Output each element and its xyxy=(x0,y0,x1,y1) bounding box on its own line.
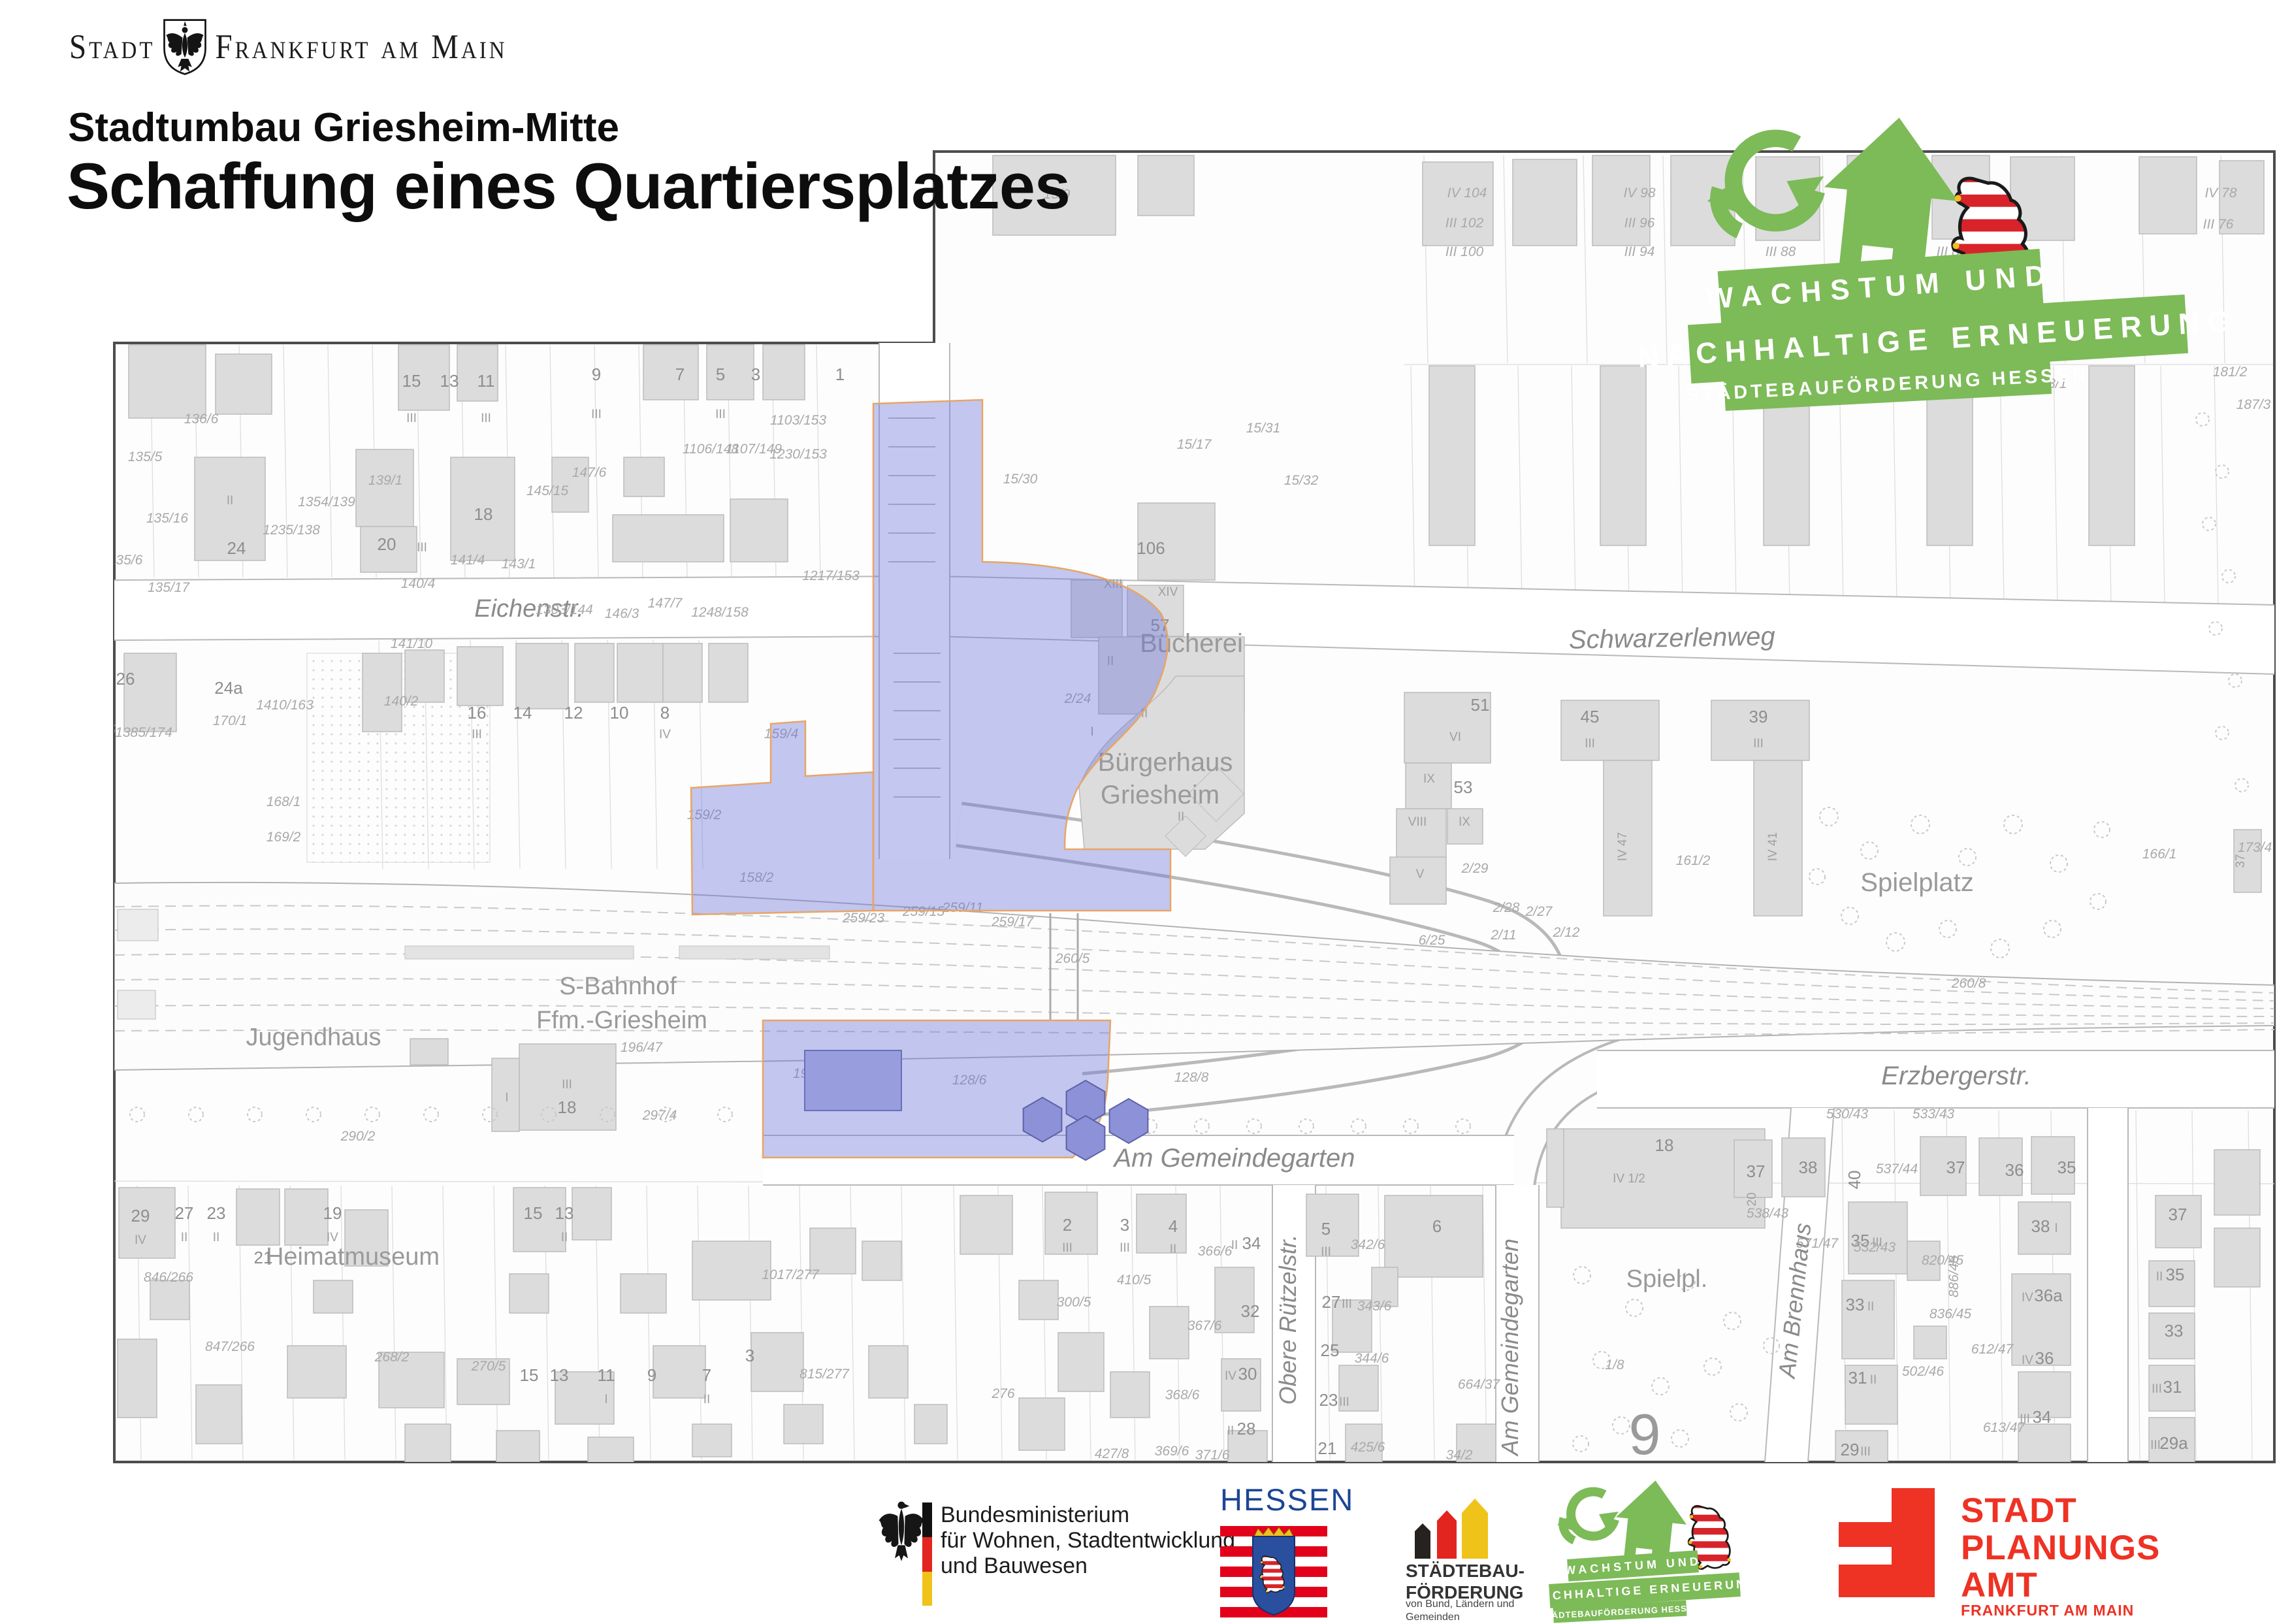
map-label: III xyxy=(1062,1241,1073,1255)
map-label: 29 xyxy=(1841,1440,1860,1459)
map-label: Erzbergerstr. xyxy=(1881,1062,2031,1090)
page-subtitle: Stadtumbau Griesheim-Mitte xyxy=(68,105,619,151)
building xyxy=(751,1333,803,1391)
map-label: 106 xyxy=(1137,538,1165,558)
map-label: 344/6 xyxy=(1355,1351,1389,1366)
bund-line2: für Wohnen, Stadtentwicklung xyxy=(941,1528,1235,1553)
map-shape xyxy=(2088,1108,2128,1462)
stb-sub2: Gemeinden xyxy=(1406,1611,1514,1624)
map-label: 2/11 xyxy=(1490,928,1516,943)
map-label: 147/6 xyxy=(572,465,607,480)
platform xyxy=(679,946,830,959)
map-label: 2 xyxy=(1063,1215,1072,1235)
map-label: Spielpl. xyxy=(1626,1265,1708,1293)
map-label: III xyxy=(417,541,427,555)
building xyxy=(2089,366,2135,545)
map-label: 36a xyxy=(2034,1286,2063,1305)
map-label: 35 xyxy=(2058,1158,2076,1177)
map-label: 530/43 xyxy=(1826,1107,1869,1122)
map-label: 425/6 xyxy=(1351,1440,1385,1455)
map-label: 32 xyxy=(1241,1301,1260,1321)
building xyxy=(285,1189,328,1245)
map-label: 33 xyxy=(2165,1321,2184,1340)
building xyxy=(1600,366,1646,545)
map-label: Heimatmuseum xyxy=(266,1243,440,1271)
map-label: 259/23 xyxy=(842,911,885,926)
map-label: III 76 xyxy=(2203,217,2234,232)
map-label: 37 xyxy=(1747,1161,1766,1181)
map-label: 260/5 xyxy=(1055,951,1090,966)
map-label: 23 xyxy=(1319,1390,1338,1410)
building xyxy=(914,1405,947,1444)
map-label: III xyxy=(591,408,602,421)
map-label: 2/28 xyxy=(1493,900,1520,915)
building xyxy=(1019,1398,1065,1450)
map-label: 23 xyxy=(207,1203,226,1223)
map-label: Ffm.-Griesheim xyxy=(536,1007,707,1034)
map-label: 815/277 xyxy=(799,1367,850,1382)
bund-ministry-label: Bundesministerium für Wohnen, Stadtentwi… xyxy=(941,1502,1235,1579)
building xyxy=(1138,155,1194,216)
map-label: 1248/158 xyxy=(691,605,749,620)
map-label: 15 xyxy=(402,371,421,391)
map-label: XIV xyxy=(1158,585,1178,599)
map-label: II xyxy=(703,1393,711,1406)
building xyxy=(1406,763,1451,809)
map-label: 18 xyxy=(558,1097,577,1117)
bund-stripe-black xyxy=(922,1502,932,1537)
map-label: 3 xyxy=(745,1346,754,1365)
map-label: III 96 xyxy=(1624,216,1655,231)
map-label: 135/17 xyxy=(148,580,191,595)
map-label: 19 xyxy=(323,1203,342,1223)
building xyxy=(1019,1280,1058,1320)
map-label: 537/44 xyxy=(1876,1161,1918,1177)
map-label: 25 xyxy=(1321,1340,1340,1360)
map-label: 1303/144 xyxy=(536,602,593,617)
map-label: Jugendhaus xyxy=(246,1024,381,1051)
staedtebau-houses-icon xyxy=(1406,1493,1497,1559)
map-label: III xyxy=(1753,737,1764,751)
map-label: 169/2 xyxy=(266,830,301,845)
stadtplanungsamt-sublabel: FRANKFURT AM MAIN xyxy=(1961,1602,2134,1619)
building xyxy=(730,499,788,562)
map-label: 161/2 xyxy=(1676,853,1711,868)
map-label: 30 xyxy=(1238,1364,1257,1384)
map-label: III xyxy=(562,1078,572,1092)
map-label: 533/43 xyxy=(1913,1107,1955,1122)
map-label: 166/1 xyxy=(2142,847,2177,862)
building xyxy=(129,345,206,418)
map-label: 37 xyxy=(2169,1205,2187,1224)
map-label: 1017/277 xyxy=(762,1267,820,1282)
map-label: 26 xyxy=(116,669,135,689)
building xyxy=(1513,159,1577,246)
map-label: 139/1 xyxy=(368,473,403,488)
bund-stripe-gold xyxy=(922,1572,932,1606)
map-label: 147/7 xyxy=(648,596,683,611)
building xyxy=(509,1274,549,1313)
map-label: III xyxy=(472,728,482,741)
frankfurt-eagle-crest-icon xyxy=(161,17,208,77)
map-label: 24a xyxy=(214,678,243,698)
hessen-wordmark: HESSEN xyxy=(1220,1482,1327,1518)
map-label: IV 1/2 xyxy=(1613,1172,1645,1186)
map-label: I xyxy=(505,1091,508,1105)
map-label: 15/30 xyxy=(1003,472,1038,487)
city-logo: Stadt Frankfurt am Main xyxy=(69,17,508,77)
building xyxy=(763,345,805,400)
map-label: II xyxy=(181,1231,188,1244)
building xyxy=(1592,155,1650,246)
building xyxy=(1547,1129,1564,1207)
map-label: 18 xyxy=(474,504,493,524)
map-label: 260/8 xyxy=(1951,976,1986,991)
building xyxy=(2018,1424,2071,1462)
map-label: IV 47 xyxy=(1616,832,1630,861)
map-label: III xyxy=(2152,1382,2162,1396)
map-label: 5 xyxy=(716,365,725,384)
building xyxy=(1914,1326,1946,1359)
map-label: III xyxy=(406,412,417,425)
map-label: III xyxy=(1860,1445,1871,1459)
building xyxy=(410,1039,448,1065)
map-label: II xyxy=(227,494,234,508)
building xyxy=(663,643,702,702)
map-label: 173/4 xyxy=(2238,840,2272,855)
building xyxy=(2214,1228,2260,1287)
map-label: II xyxy=(1867,1300,1875,1314)
map-label: V xyxy=(1416,868,1425,881)
map-label: 146/3 xyxy=(605,606,639,621)
map-label: 40 xyxy=(1845,1171,1864,1190)
map-label: 846/266 xyxy=(144,1270,193,1285)
map-label: 35 xyxy=(2166,1265,2185,1284)
map-label: 16 xyxy=(468,703,487,723)
map-label: 145/15 xyxy=(526,483,569,498)
map-label: 12 xyxy=(564,703,583,723)
map-label: 15 xyxy=(524,1203,543,1223)
map-label: 820/45 xyxy=(1922,1253,1964,1268)
building xyxy=(1150,1307,1189,1359)
map-label: 37 xyxy=(2234,854,2248,868)
building xyxy=(496,1431,540,1462)
map-label: II xyxy=(2156,1270,2163,1284)
map-label: 3 xyxy=(1120,1215,1129,1235)
building xyxy=(363,653,402,732)
staedtebau-sublabel: von Bund, Ländern und Gemeinden xyxy=(1406,1598,1514,1624)
map-label: 21 xyxy=(1318,1438,1337,1458)
building xyxy=(405,1424,451,1462)
map-label: III 94 xyxy=(1624,244,1655,259)
building xyxy=(613,515,724,562)
building xyxy=(356,449,413,527)
map-label: II xyxy=(1870,1373,1877,1387)
map-label: 1217/153 xyxy=(802,568,860,583)
spa-line3: AMT xyxy=(1961,1567,2160,1604)
map-label: 410/5 xyxy=(1117,1273,1152,1288)
map-label: III 102 xyxy=(1445,216,1484,231)
map-label: II xyxy=(1231,1239,1238,1252)
building xyxy=(1110,1372,1150,1418)
spa-line2: PLANUNGS xyxy=(1961,1529,2160,1567)
map-label: 2/27 xyxy=(1525,904,1553,919)
building xyxy=(617,643,663,702)
map-label: 502/46 xyxy=(1902,1364,1945,1379)
map-label: 37 xyxy=(1946,1158,1965,1177)
map-label: 2/12 xyxy=(1553,925,1580,940)
map-label: 20 xyxy=(378,534,396,554)
map-label: 1230/153 xyxy=(769,447,827,462)
building xyxy=(196,1385,242,1444)
map-label: 847/266 xyxy=(205,1339,255,1354)
map-label: 836/45 xyxy=(1929,1307,1972,1322)
map-label: IV xyxy=(2022,1354,2033,1367)
map-shape xyxy=(118,990,155,1019)
map-label: III xyxy=(2020,1412,2030,1426)
map-label: 196/47 xyxy=(621,1040,664,1055)
map-label: 297/4 xyxy=(642,1108,677,1123)
map-label: 29a xyxy=(2159,1433,2188,1453)
map-label: 51 xyxy=(1471,695,1490,715)
map-label: 141/4 xyxy=(451,553,485,568)
building xyxy=(692,1241,771,1300)
map-label: 168/1 xyxy=(266,794,301,809)
building xyxy=(709,643,748,702)
map-label: 143/1 xyxy=(502,557,536,572)
map-label: 34/2 xyxy=(1446,1448,1473,1463)
map-label: 128/8 xyxy=(1174,1070,1209,1085)
map-label: 38 xyxy=(2031,1216,2050,1236)
map-label: II xyxy=(1170,1242,1177,1256)
map-label: 135/16 xyxy=(146,511,189,526)
map-label: 290/2 xyxy=(340,1129,376,1144)
map-label: 39 xyxy=(1749,707,1768,726)
map-label: 300/5 xyxy=(1057,1295,1091,1310)
map-label: 367/6 xyxy=(1187,1318,1222,1333)
map-label: Am Gemeindegarten xyxy=(1112,1144,1355,1173)
map-label: 20 xyxy=(1745,1192,1759,1206)
map-label: III xyxy=(1339,1395,1349,1409)
map-label: 259/17 xyxy=(991,915,1035,930)
platform xyxy=(405,946,634,959)
map-label: 9 xyxy=(592,365,601,384)
map-label: 1384/175 xyxy=(58,723,116,738)
map-label: 368/6 xyxy=(1165,1388,1200,1403)
building xyxy=(692,1424,732,1457)
building xyxy=(457,647,503,706)
building xyxy=(1561,700,1659,760)
map-label: 187/3 xyxy=(2236,397,2271,412)
building xyxy=(2214,1150,2260,1215)
building xyxy=(862,1241,901,1280)
map-label: IV xyxy=(659,728,671,741)
building xyxy=(1137,1194,1186,1253)
stb-line1: STÄDTEBAU- xyxy=(1406,1560,1525,1582)
map-label: 18 xyxy=(1655,1135,1674,1155)
map-label: III xyxy=(1342,1297,1352,1311)
map-label: II xyxy=(213,1231,220,1244)
map-label: III xyxy=(2150,1438,2161,1452)
building xyxy=(1842,1280,1894,1359)
map-label: 45 xyxy=(1581,707,1600,726)
map-label: Bürgerhaus xyxy=(1098,748,1233,777)
building xyxy=(869,1346,908,1398)
map-label: 181/2 xyxy=(2213,365,2248,380)
map-shape xyxy=(118,909,158,941)
map-label: 1235/138 xyxy=(263,523,320,538)
map-label: 276 xyxy=(991,1386,1014,1401)
page-title: Schaffung eines Quartiersplatzes xyxy=(67,149,1070,223)
map-label: II xyxy=(561,1231,568,1244)
building xyxy=(1385,1195,1483,1277)
spa-line1: STADT xyxy=(1961,1492,2160,1529)
map-label: 427/8 xyxy=(1095,1446,1129,1461)
staedtebau-label: STÄDTEBAU- FÖRDERUNG xyxy=(1406,1560,1525,1603)
building xyxy=(960,1195,1012,1254)
building xyxy=(624,457,664,496)
map-label: IV 104 xyxy=(1447,186,1487,201)
map-label: 1/8 xyxy=(1605,1357,1624,1372)
map-label: S-Bahnhof xyxy=(559,973,677,1000)
map-label: IV xyxy=(2022,1291,2033,1305)
map-label: IV 98 xyxy=(1623,186,1655,201)
building xyxy=(643,345,698,400)
map-label: 8 xyxy=(660,703,670,723)
map-label: 15/17 xyxy=(1177,437,1212,452)
building-in-project-area xyxy=(805,1050,901,1111)
map-label: 13 xyxy=(555,1203,574,1223)
map-label: Griesheim xyxy=(1101,781,1219,809)
map-label: 3 xyxy=(751,365,760,384)
building xyxy=(1058,1333,1104,1391)
map-label: 6/25 xyxy=(1419,933,1445,948)
map-label: 1354/139 xyxy=(298,495,355,510)
map-label: I xyxy=(604,1393,607,1406)
map-label: 53 xyxy=(1454,777,1473,797)
map-label: 34 xyxy=(2033,1407,2052,1427)
map-label: 135/5 xyxy=(128,449,163,464)
bund-stripe-red xyxy=(922,1537,932,1572)
map-label: 27 xyxy=(1322,1292,1341,1312)
map-label: Am Gemeindegarten xyxy=(1496,1239,1523,1457)
map-label: Spielplatz xyxy=(1860,868,1973,897)
map-label: 1385/174 xyxy=(115,725,172,740)
map-label: 369/6 xyxy=(1155,1444,1189,1459)
building xyxy=(784,1405,823,1444)
building xyxy=(150,1280,189,1320)
map-label: 10 xyxy=(610,703,629,723)
map-label: VI xyxy=(1449,730,1461,744)
city-logo-word1: Stadt xyxy=(69,27,155,67)
building xyxy=(124,653,176,732)
map-label: 2/29 xyxy=(1461,861,1489,876)
bund-line1: Bundesministerium xyxy=(941,1502,1235,1528)
stb-sub1: von Bund, Ländern und xyxy=(1406,1598,1514,1611)
building xyxy=(588,1437,634,1463)
map-label: 136/6 xyxy=(184,412,219,427)
map-label: II xyxy=(1178,810,1185,824)
map-label: 33 xyxy=(1846,1295,1865,1314)
map-label: VIII xyxy=(1408,815,1427,829)
map-label: 5 xyxy=(1321,1219,1331,1239)
map-label: IV xyxy=(327,1231,338,1244)
building xyxy=(621,1274,666,1313)
map-label: 1103/153 xyxy=(770,413,826,428)
city-logo-word2: Frankfurt am Main xyxy=(215,27,507,67)
map-label: 270/5 xyxy=(471,1359,506,1374)
map-label: 15/31 xyxy=(1246,421,1281,436)
map-label: 1410/163 xyxy=(256,698,314,713)
map-label: 15/32 xyxy=(1284,473,1319,488)
map-label: IV 41 xyxy=(1766,832,1780,861)
map-label: 342/6 xyxy=(1351,1237,1385,1252)
map-label: 13 xyxy=(440,371,459,391)
map-label: 140/4 xyxy=(401,576,436,591)
map-label: 371/6 xyxy=(1195,1448,1230,1463)
map-label: Schwarzerlenweg xyxy=(1569,622,1775,655)
map-label: 140/2 xyxy=(384,694,419,709)
map-label: 538/43 xyxy=(1747,1206,1789,1221)
map-label: 141/10 xyxy=(391,636,433,651)
map-label: 36 xyxy=(2005,1160,2024,1180)
map-label: III 100 xyxy=(1445,244,1484,259)
building xyxy=(2139,157,2197,234)
building xyxy=(118,1339,157,1418)
map-label: IV xyxy=(135,1233,146,1247)
map-label: III xyxy=(1120,1241,1130,1255)
map-label: III xyxy=(481,412,491,425)
map-label: 15 xyxy=(520,1365,539,1385)
building xyxy=(707,345,754,400)
map-label: 11 xyxy=(598,1365,615,1385)
building xyxy=(1429,366,1475,545)
stadtplanungsamt-label: STADT PLANUNGS AMT xyxy=(1961,1492,2160,1604)
map-label: 11 xyxy=(477,371,495,391)
map-label: II xyxy=(1227,1424,1235,1438)
building xyxy=(1423,162,1493,246)
map-label: IV 78 xyxy=(2204,186,2236,201)
map-label: 4 xyxy=(1169,1216,1178,1236)
building xyxy=(575,643,614,702)
map-label: 9 xyxy=(647,1365,656,1385)
bund-line3: und Bauwesen xyxy=(941,1553,1235,1579)
map-label: 31 xyxy=(1848,1368,1867,1388)
map-label: Obere Rützelstr. xyxy=(1274,1235,1301,1405)
map-label: 28 xyxy=(1237,1419,1256,1438)
map-label: 612/47 xyxy=(1971,1342,2014,1357)
map-label: III xyxy=(1321,1245,1331,1259)
map-label: 1 xyxy=(835,365,845,384)
map-label: 29 xyxy=(131,1206,150,1226)
map-label: 14 xyxy=(513,703,532,723)
building xyxy=(314,1280,353,1313)
map-label: 9 xyxy=(1629,1402,1661,1467)
map-label: III xyxy=(715,408,726,421)
map-label: 38 xyxy=(1799,1158,1818,1177)
building xyxy=(572,1188,611,1240)
building xyxy=(516,643,568,709)
building xyxy=(653,1346,705,1398)
map-label: 664/37 xyxy=(1458,1377,1501,1392)
map-label: IX xyxy=(1459,815,1470,829)
map-label: 7 xyxy=(675,365,685,384)
stadtplanungsamt-icon xyxy=(1839,1488,1935,1597)
map-label: I xyxy=(2054,1222,2058,1235)
map-label: 571/47 xyxy=(1796,1236,1839,1251)
hessen-coat-of-arms xyxy=(1220,1526,1327,1619)
building xyxy=(216,354,272,414)
